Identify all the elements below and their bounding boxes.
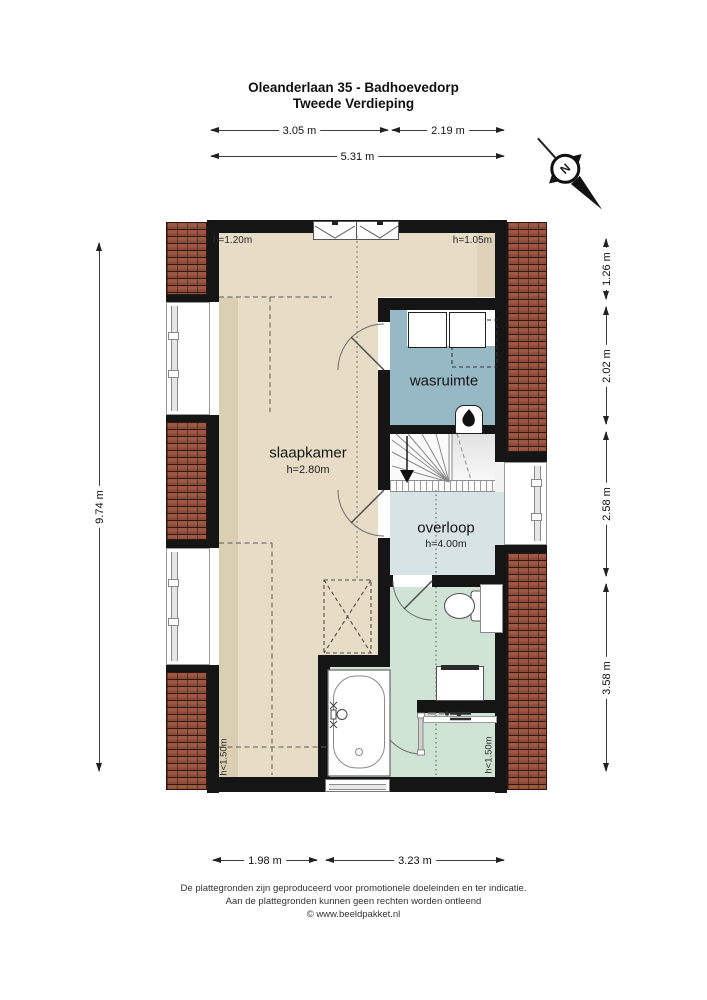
dimension-label: 1.98 m bbox=[244, 855, 286, 867]
dimension-top-1: 3.05 m bbox=[210, 125, 389, 137]
washing-machine-box bbox=[408, 312, 447, 348]
dimension-bottom-2: 3.23 m bbox=[325, 855, 505, 867]
dimension-right-4: 3.58 m bbox=[601, 583, 613, 772]
dimension-label: 9.74 m bbox=[94, 486, 106, 528]
dimension-label: 2.19 m bbox=[427, 125, 469, 137]
north-arrow-icon: N bbox=[527, 128, 614, 219]
dryer-box bbox=[449, 312, 486, 348]
dimension-label: 2.02 m bbox=[601, 345, 613, 387]
dimension-label: 3.05 m bbox=[279, 125, 321, 137]
room-label-slaapkamer: slaapkamer bbox=[269, 445, 347, 462]
compass: N bbox=[533, 131, 607, 217]
height-contour-lines bbox=[219, 297, 332, 775]
compass-stem bbox=[537, 138, 556, 159]
footer-disclaimer-2: Aan de plattegronden kunnen geen rechten… bbox=[0, 896, 707, 907]
room-height-overloop: h=4.00m bbox=[425, 538, 466, 550]
room-height-slaapkamer: h=2.80m bbox=[286, 464, 329, 476]
window-handle bbox=[377, 220, 383, 225]
footer-copyright: © www.beeldpakket.nl bbox=[0, 909, 707, 920]
dimension-top-total: 5.31 m bbox=[210, 151, 505, 163]
sink-backsplash bbox=[441, 665, 479, 670]
height-note-bottom-right: h<1.50m bbox=[484, 736, 495, 773]
dimension-label: 5.31 m bbox=[337, 151, 379, 163]
shower-screen bbox=[423, 716, 497, 723]
compass-spike-right bbox=[572, 150, 585, 163]
door-overloop bbox=[338, 490, 384, 536]
room-label-wasruimte: wasruimte bbox=[410, 373, 478, 390]
door-badkamer bbox=[393, 581, 432, 620]
dimension-label: 1.26 m bbox=[601, 248, 613, 290]
height-note-top-left: h=1.20m bbox=[213, 235, 252, 246]
skylight-icon bbox=[324, 580, 371, 653]
height-note-top-right: h=1.05m bbox=[453, 235, 492, 246]
compass-spike-left bbox=[546, 174, 559, 187]
dimension-bottom-1: 1.98 m bbox=[212, 855, 318, 867]
bathtub-icon bbox=[328, 670, 390, 776]
door-wasruimte bbox=[338, 324, 384, 370]
height-note-bottom-left: h<1.50m bbox=[219, 738, 230, 775]
dimension-right-2: 2.02 m bbox=[601, 306, 613, 425]
toilet-shelf bbox=[480, 584, 503, 633]
dimension-label: 3.58 m bbox=[601, 657, 613, 699]
dimension-label: 3.23 m bbox=[394, 855, 436, 867]
window-handle bbox=[332, 220, 338, 225]
floorplan-page: Oleanderlaan 35 - Badhoevedorp Tweede Ve… bbox=[0, 0, 707, 1000]
footer-disclaimer-1: De plattegronden zijn geproduceerd voor … bbox=[0, 883, 707, 894]
sink-vanity bbox=[436, 666, 484, 701]
heater-box bbox=[455, 405, 483, 434]
room-label-overloop: overloop bbox=[417, 520, 475, 537]
compass-north-label: N bbox=[557, 161, 573, 177]
dimension-left-total: 9.74 m bbox=[94, 242, 106, 772]
dimension-top-2: 2.19 m bbox=[391, 125, 505, 137]
dimension-label: 2.58 m bbox=[601, 483, 613, 525]
dimension-right-3: 2.58 m bbox=[601, 431, 613, 577]
dimension-right-1: 1.26 m bbox=[601, 238, 613, 300]
compass-needle bbox=[571, 176, 607, 214]
stairs-down-arrow bbox=[400, 470, 414, 483]
